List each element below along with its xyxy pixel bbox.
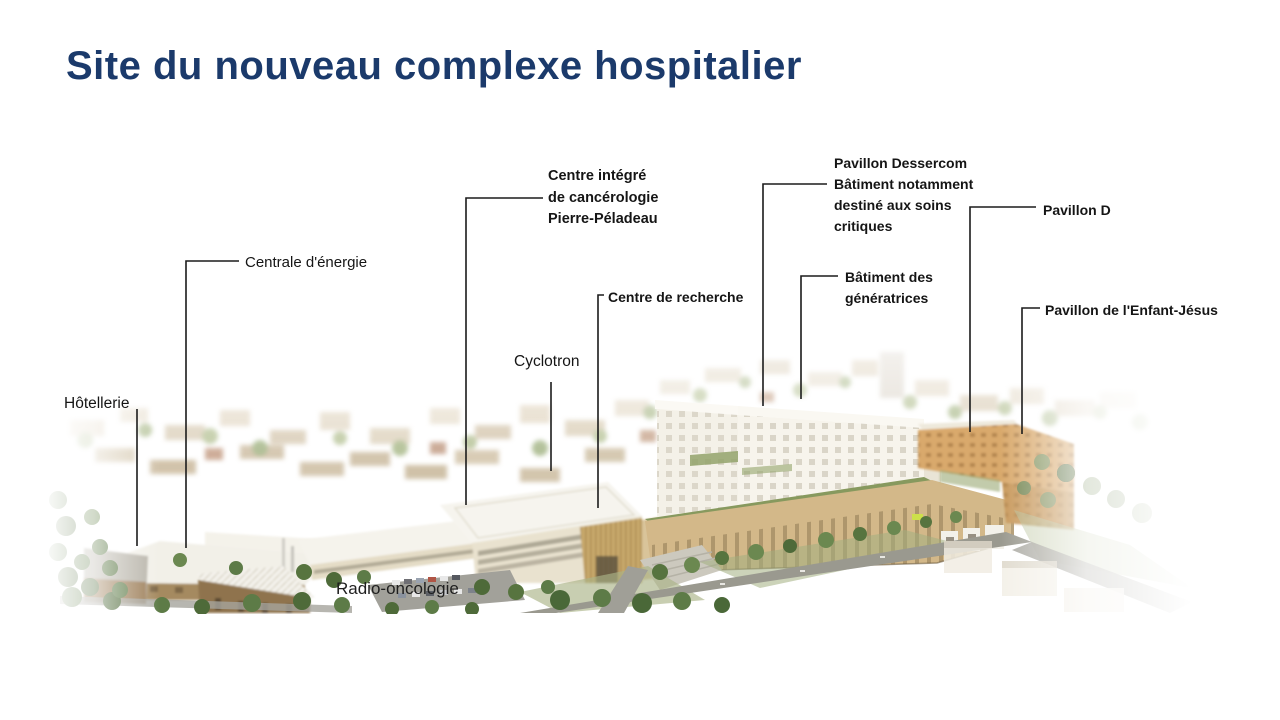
label-cyclotron: Cyclotron — [514, 352, 579, 371]
label-centre-integre: Centre intégré de cancérologie Pierre-Pé… — [548, 166, 658, 231]
center-buildings — [298, 482, 674, 583]
label-batiment-generatrices: Bâtiment des génératrices — [845, 267, 933, 309]
site-rendering — [0, 0, 1280, 720]
slide: Site du nouveau complexe hospitalier Cen… — [0, 0, 1280, 720]
page-title: Site du nouveau complexe hospitalier — [66, 44, 802, 89]
label-pavillon-dessercom: Pavillon Dessercom Bâtiment notamment de… — [834, 153, 973, 237]
label-radio-oncologie: Radio-oncologie — [336, 579, 459, 598]
label-pavillon-d: Pavillon D — [1043, 200, 1111, 221]
label-hotellerie: Hôtellerie — [64, 394, 129, 413]
label-centrale-energie: Centrale d'énergie — [245, 253, 367, 272]
label-pavillon-enfant-jesus: Pavillon de l'Enfant-Jésus — [1045, 300, 1218, 321]
label-centre-recherche: Centre de recherche — [608, 287, 743, 308]
